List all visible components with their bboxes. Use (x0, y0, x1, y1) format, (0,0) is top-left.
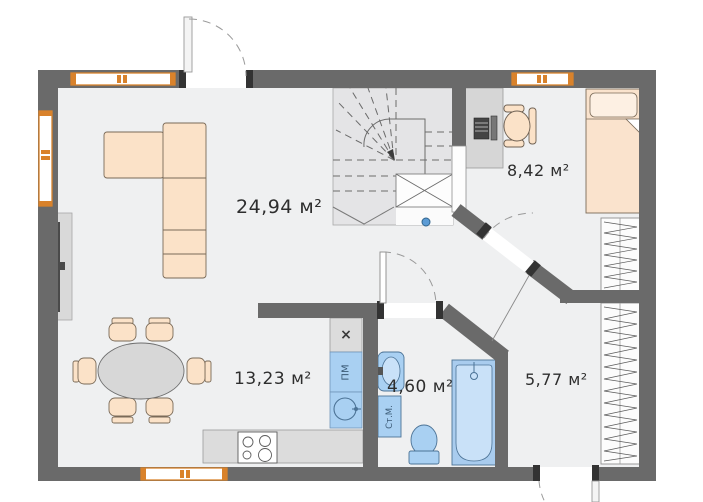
kitchen-sink (330, 392, 362, 428)
window-dining (141, 468, 227, 480)
room-label-hallway: 5,77 м² (525, 370, 588, 389)
wall-bedroom-hall-divider (560, 290, 656, 303)
room-label-kitchen: 13,23 м² (234, 369, 312, 389)
computer (474, 116, 497, 140)
room-label-bedroom: 8,42 м² (507, 161, 570, 180)
wall-void-above-stairs (452, 146, 466, 212)
wardrobe-bedroom (601, 218, 640, 292)
toilet (409, 425, 439, 464)
door-leaf (380, 252, 386, 303)
bed (586, 89, 641, 213)
bathtub (452, 360, 496, 465)
dining-table (98, 343, 184, 399)
hob-box-label: × (330, 318, 362, 352)
floor-plan: 24,94 м² 8,42 м² 13,23 м² 4,60 м² 5,77 м… (0, 0, 703, 502)
stove (238, 432, 277, 463)
wall-bedroom-divider (452, 88, 466, 146)
floor-plan-drawing (0, 0, 703, 502)
sink-tap (378, 367, 383, 375)
door-leaf (592, 481, 599, 502)
window-bedroom (512, 73, 573, 85)
window-living-top (71, 73, 175, 85)
office-chair (504, 105, 536, 147)
pillow (590, 93, 637, 117)
staircase (333, 88, 453, 226)
riser-dot (422, 218, 430, 226)
stair-void-box (396, 174, 453, 225)
wardrobe-hall (601, 303, 640, 464)
washing-machine-label: Ст.М. (378, 396, 401, 437)
wall-right (639, 70, 656, 481)
window-living-left (39, 111, 52, 206)
kitchen-counter (203, 430, 363, 463)
wall-kitchen-bathroom (363, 303, 378, 467)
room-label-bathroom: 4,60 м² (387, 377, 453, 397)
hall-exit-door-bottom (533, 465, 599, 502)
entrance-door-top (179, 17, 253, 88)
door-leaf (184, 17, 192, 72)
room-label-living: 24,94 м² (236, 196, 322, 218)
wall-bathroom-hall (495, 350, 508, 467)
dishwasher-label: ПМ (330, 352, 362, 392)
